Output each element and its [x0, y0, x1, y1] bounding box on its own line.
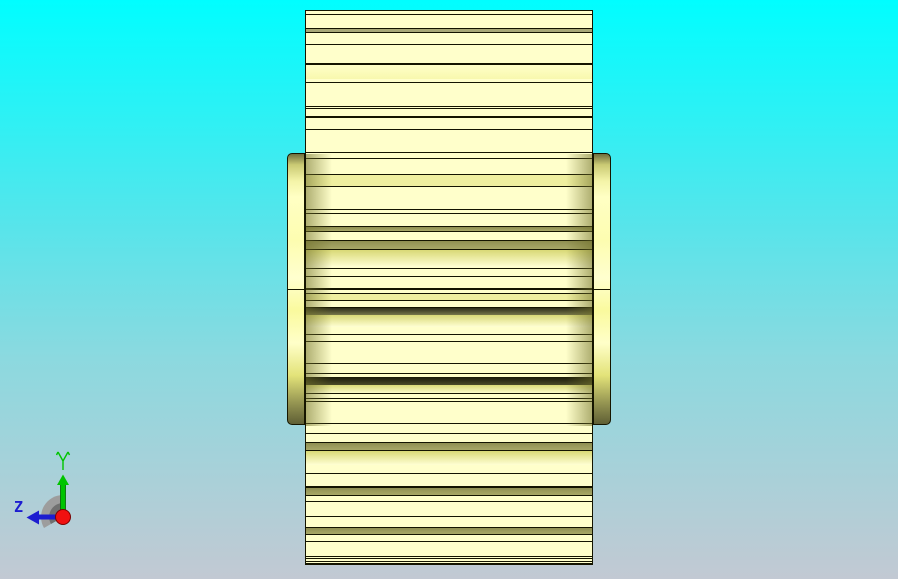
reflection-band — [306, 393, 592, 394]
reflection-band — [306, 106, 592, 107]
reflection-band — [306, 250, 592, 267]
reflection-band — [306, 541, 592, 542]
reflection-band — [306, 231, 592, 232]
reflection-band — [306, 556, 592, 557]
reflection-band — [306, 14, 592, 15]
reflection-band — [306, 363, 592, 364]
reflection-band — [306, 423, 592, 424]
reflection-band — [306, 488, 592, 495]
reflection-band — [306, 129, 592, 130]
reflection-band — [306, 315, 592, 327]
reflection-band — [306, 44, 592, 45]
origin-point[interactable] — [56, 510, 71, 525]
reflection-band — [306, 268, 592, 269]
reflection-band — [306, 501, 592, 502]
reflection-band — [306, 308, 592, 315]
y-axis-label-glyph — [57, 452, 70, 470]
reflection-band — [306, 158, 592, 159]
model-body[interactable] — [305, 10, 593, 565]
reflection-band — [306, 82, 592, 83]
reflection-band — [306, 473, 592, 474]
reflection-band — [306, 241, 592, 249]
reflection-band — [306, 341, 592, 342]
z-axis-label: Z — [14, 498, 23, 516]
orientation-triad[interactable]: Z — [8, 440, 108, 540]
reflection-band — [306, 516, 592, 517]
reflection-band — [306, 433, 592, 434]
flange-edge-line — [594, 289, 610, 290]
model-flange-left[interactable] — [287, 153, 305, 425]
reflection-band — [306, 300, 592, 301]
reflection-band — [306, 209, 592, 210]
reflection-band — [306, 116, 592, 118]
reflection-band — [306, 398, 592, 399]
y-axis-arrowhead — [57, 475, 69, 486]
reflection-band — [306, 175, 592, 186]
reflection-band — [306, 561, 592, 562]
reflection-band — [306, 563, 592, 565]
cad-viewport[interactable]: Z — [0, 0, 898, 579]
reflection-band — [306, 186, 592, 187]
reflection-band — [306, 558, 592, 559]
z-axis-arrowhead — [27, 511, 40, 525]
reflection-band — [306, 288, 592, 290]
reflection-band — [306, 65, 592, 79]
reflection-band — [306, 276, 592, 277]
reflection-band — [306, 377, 592, 385]
reflection-band — [306, 401, 592, 402]
y-axis-label — [57, 452, 70, 470]
reflection-band — [306, 334, 592, 335]
reflection-band — [306, 213, 592, 214]
reflection-band — [306, 451, 592, 465]
reflection-band — [306, 443, 592, 450]
reflection-band — [306, 32, 592, 33]
model-flange-right[interactable] — [593, 153, 611, 425]
reflection-band — [306, 152, 592, 153]
reflection-band — [306, 495, 592, 496]
reflection-band — [306, 373, 592, 374]
reflection-band — [306, 108, 592, 109]
flange-edge-line — [288, 289, 304, 290]
reflection-band — [306, 534, 592, 535]
